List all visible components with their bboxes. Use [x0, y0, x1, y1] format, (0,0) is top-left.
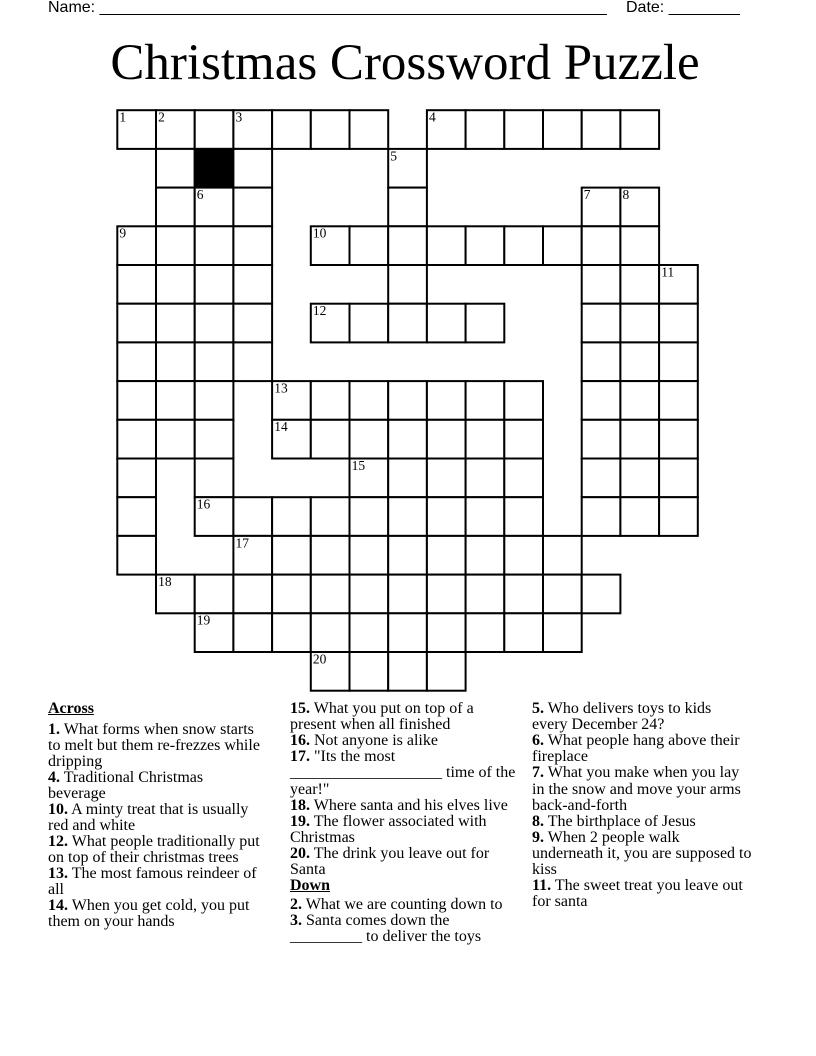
svg-text:20: 20 — [313, 651, 327, 666]
svg-text:10: 10 — [313, 226, 327, 241]
svg-text:8: 8 — [623, 187, 630, 202]
svg-text:14: 14 — [274, 419, 288, 434]
svg-text:12: 12 — [313, 303, 327, 318]
svg-text:5: 5 — [390, 148, 397, 163]
svg-text:9: 9 — [119, 226, 126, 241]
svg-text:4: 4 — [429, 110, 436, 125]
svg-text:19: 19 — [197, 613, 211, 628]
svg-text:6: 6 — [197, 187, 204, 202]
svg-text:13: 13 — [274, 381, 288, 396]
svg-text:7: 7 — [584, 187, 591, 202]
svg-text:11: 11 — [661, 264, 674, 279]
svg-text:15: 15 — [352, 458, 366, 473]
svg-text:1: 1 — [119, 110, 126, 125]
svg-text:17: 17 — [236, 535, 250, 550]
svg-text:3: 3 — [236, 110, 243, 125]
svg-text:16: 16 — [197, 497, 211, 512]
svg-text:2: 2 — [158, 110, 165, 125]
svg-text:18: 18 — [158, 574, 172, 589]
